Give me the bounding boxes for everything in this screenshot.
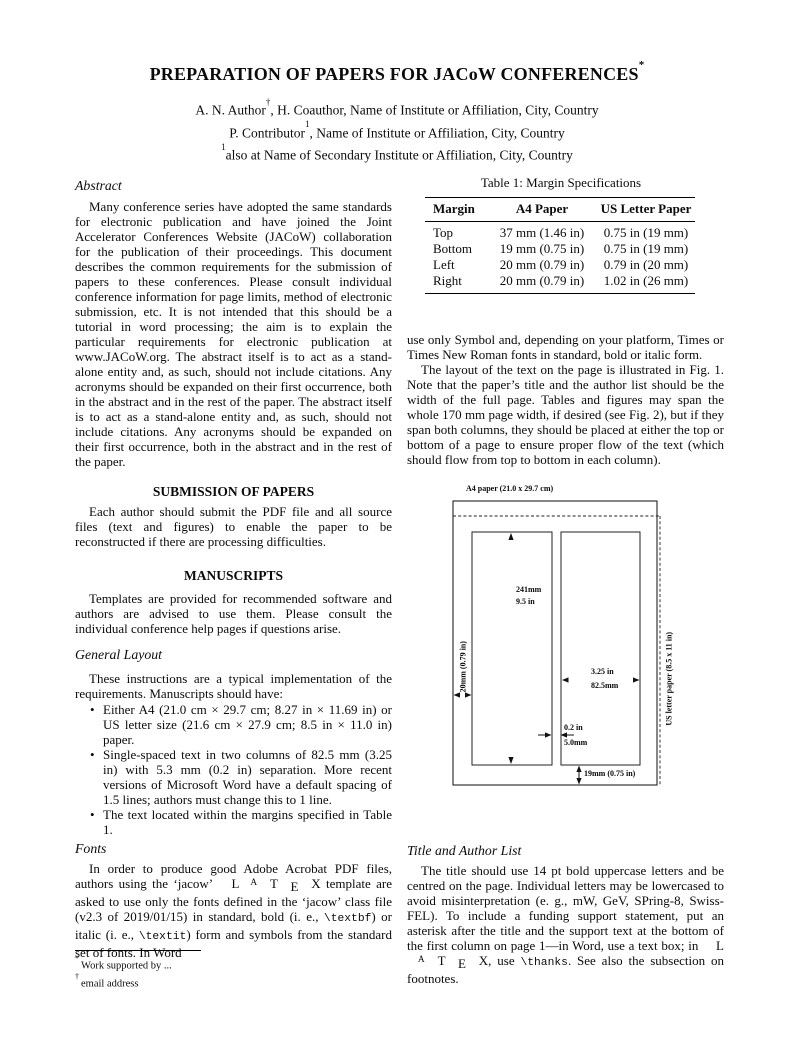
margin-specifications-table: MarginA4 PaperUS Letter Paper Top37 mm (… [425, 197, 695, 294]
author-footnote-mark: † [266, 97, 271, 107]
footnote-line: †email address [75, 973, 392, 991]
manuscripts-heading: MANUSCRIPTS [75, 568, 392, 584]
code-span: \thanks [520, 957, 567, 969]
text-span: The title should use 14 pt bold uppercas… [407, 863, 724, 953]
table-body: Top37 mm (1.46 in)0.75 in (19 mm)Bottom1… [425, 222, 695, 294]
fonts-paragraph: In order to produce good Adobe Acrobat P… [75, 861, 392, 960]
title-author-heading: Title and Author List [407, 843, 724, 859]
requirements-bullet-list: Either A4 (21.0 cm × 29.7 cm; 8.27 in × … [75, 702, 392, 837]
table-cell: 20 mm (0.79 in) [487, 273, 597, 294]
author-footnote-mark: 1 [221, 142, 226, 152]
paper-page: PREPARATION OF PAPERS FOR JACoW CONFEREN… [0, 0, 794, 1057]
figure-1: A4 paper (21.0 x 29.7 cm) 241mm 9.5 in 2… [407, 483, 737, 828]
author-footnote-mark: 1 [305, 119, 310, 129]
bullet-item: Either A4 (21.0 cm × 29.7 cm; 8.27 in × … [103, 702, 392, 747]
manuscripts-paragraph: Templates are provided for recommended s… [75, 591, 392, 636]
figure-us-letter-label: US letter paper (8.5 x 11 in) [664, 619, 674, 739]
table-cell: 19 mm (0.75 in) [487, 241, 597, 257]
fonts-continuation-paragraph: use only Symbol and, depending on your p… [407, 332, 724, 362]
fonts-heading: Fonts [75, 841, 392, 857]
table-header-cell: Margin [425, 198, 487, 222]
table-cell: 20 mm (0.79 in) [487, 257, 597, 273]
code-span: \textit [139, 931, 186, 943]
figure-gap-in-label: 0.2 in [564, 723, 583, 733]
title-author-paragraph: The title should use 14 pt bold uppercas… [407, 863, 724, 986]
figure-column-width-mm-label: 82.5mm [591, 681, 618, 691]
latex-logo: LATEX [218, 876, 321, 891]
table-cell: Bottom [425, 241, 487, 257]
margin-table-block: Table 1: Margin Specifications MarginA4 … [425, 175, 697, 294]
paper-header: PREPARATION OF PAPERS FOR JACoW CONFEREN… [0, 64, 794, 165]
text-span: , use [488, 953, 520, 968]
bullet-item: Single-spaced text in two columns of 82.… [103, 747, 392, 807]
bullet-item: The text located within the margins spec… [103, 807, 392, 837]
table-cell: 37 mm (1.46 in) [487, 222, 597, 242]
footnotes: *Work supported by ...†email address [75, 955, 392, 991]
author-line: 1also at Name of Secondary Institute or … [0, 142, 794, 165]
title-footnote-mark: * [639, 59, 645, 71]
table-header-cell: A4 Paper [487, 198, 597, 222]
table-row: Right20 mm (0.79 in)1.02 in (26 mm) [425, 273, 695, 294]
footnote-line: *Work supported by ... [75, 955, 392, 973]
figure-diagram [407, 483, 737, 828]
author-line: A. N. Author†, H. Coauthor, Name of Inst… [0, 97, 794, 120]
layout-paragraph: The layout of the text on the page is il… [407, 362, 724, 467]
table-row: Left20 mm (0.79 in)0.79 in (20 mm) [425, 257, 695, 273]
table-cell: 1.02 in (26 mm) [597, 273, 695, 294]
figure-gap-mm-label: 5.0mm [564, 738, 587, 748]
table-row: Top37 mm (1.46 in)0.75 in (19 mm) [425, 222, 695, 242]
table-cell: Right [425, 273, 487, 294]
general-layout-paragraph: These instructions are a typical impleme… [75, 671, 392, 701]
right-column: Table 1: Margin Specifications MarginA4 … [407, 170, 737, 1040]
paper-title-text: PREPARATION OF PAPERS FOR JACoW CONFEREN… [150, 64, 639, 84]
table-header-cell: US Letter Paper [597, 198, 695, 222]
footnote-rule [75, 950, 201, 951]
submission-heading: SUBMISSION OF PAPERS [75, 484, 392, 500]
table-row: Bottom19 mm (0.75 in)0.75 in (19 mm) [425, 241, 695, 257]
table-cell: 0.75 in (19 mm) [597, 241, 695, 257]
paper-title: PREPARATION OF PAPERS FOR JACoW CONFEREN… [0, 64, 794, 85]
figure-a4-label: A4 paper (21.0 x 29.7 cm) [466, 484, 553, 494]
code-span: \textbf [324, 913, 371, 925]
table-cell: Top [425, 222, 487, 242]
table-cell: 0.75 in (19 mm) [597, 222, 695, 242]
author-line: P. Contributor1, Name of Institute or Af… [0, 120, 794, 143]
table-caption: Table 1: Margin Specifications [425, 175, 697, 191]
general-layout-heading: General Layout [75, 647, 392, 663]
abstract-paragraph: Many conference series have adopted the … [75, 199, 392, 469]
figure-left-margin-label: 20mm (0.79 in) [458, 612, 468, 722]
submission-paragraph: Each author should submit the PDF file a… [75, 504, 392, 549]
abstract-heading: Abstract [75, 178, 392, 194]
figure-column-height-in-label: 9.5 in [516, 597, 535, 607]
figure-bottom-margin-label: 19mm (0.75 in) [584, 769, 635, 779]
table-cell: 0.79 in (20 mm) [597, 257, 695, 273]
figure-column-width-in-label: 3.25 in [591, 667, 614, 677]
table-header-row: MarginA4 PaperUS Letter Paper [425, 198, 695, 222]
author-list: A. N. Author†, H. Coauthor, Name of Inst… [0, 97, 794, 165]
left-column: Abstract Many conference series have ado… [75, 172, 392, 1032]
table-cell: Left [425, 257, 487, 273]
fonts-continuation-block: use only Symbol and, depending on your p… [407, 332, 724, 467]
figure-column-height-mm-label: 241mm [516, 585, 541, 595]
